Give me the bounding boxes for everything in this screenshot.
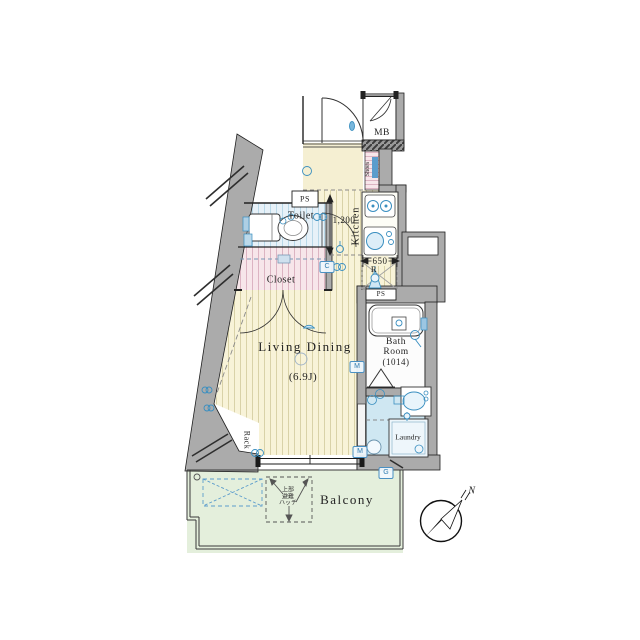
sink-icon xyxy=(364,227,396,255)
bath-room-size: (1014) xyxy=(383,357,410,367)
bath-room-label-line1: Bath xyxy=(386,337,406,347)
living-dining-label: Living Dining xyxy=(258,339,352,355)
stove-icon xyxy=(365,195,395,217)
fridge-space-r: R xyxy=(371,264,377,274)
living-dining-size: (6.9J) xyxy=(289,371,317,383)
external-alcove xyxy=(408,237,438,255)
north-label: N xyxy=(468,486,475,497)
meter-m-window-box: M xyxy=(353,446,368,458)
evacuation-hatch-text: 上部 避難 ハッチ xyxy=(279,487,297,507)
stool-icon xyxy=(367,440,381,454)
meter-g-box: G xyxy=(379,467,394,479)
kitchen-label: Kitchen xyxy=(351,207,362,246)
ps-entry-label: PS xyxy=(300,195,310,204)
balcony-label: Balcony xyxy=(320,492,374,508)
door-handle-icon xyxy=(350,122,355,131)
entry-floor xyxy=(303,143,363,190)
rack-label: Rack xyxy=(243,431,252,449)
toilet-label: Toilet xyxy=(288,211,314,222)
meter-box-label: MB xyxy=(374,128,390,138)
ps-bath-label: PS xyxy=(377,290,386,298)
floor-plan: Living Dining (6.9J) Kitchen Toilet Clos… xyxy=(0,0,640,640)
closet-label: Closet xyxy=(267,275,296,286)
bath-room-label-line2: Room xyxy=(383,347,408,357)
entrance-door-arc xyxy=(322,98,363,139)
compass xyxy=(421,490,471,542)
dimension-hall-1200: 1,200 xyxy=(333,215,356,225)
washbasin-icon xyxy=(401,387,431,416)
meter-c-box: C xyxy=(320,261,335,273)
floor-plan-drawing xyxy=(0,0,640,640)
hatch-text-line3: ハッチ xyxy=(279,500,297,507)
meter-m-wall-box: M xyxy=(350,361,365,373)
kitchen-counter xyxy=(362,192,398,258)
mirror-icon xyxy=(372,157,378,178)
shoes-box-label: Shoes xyxy=(365,162,371,176)
balcony-floor xyxy=(187,470,403,553)
laundry-label: Laundry xyxy=(395,433,420,442)
washroom-sliding-door xyxy=(358,404,366,446)
